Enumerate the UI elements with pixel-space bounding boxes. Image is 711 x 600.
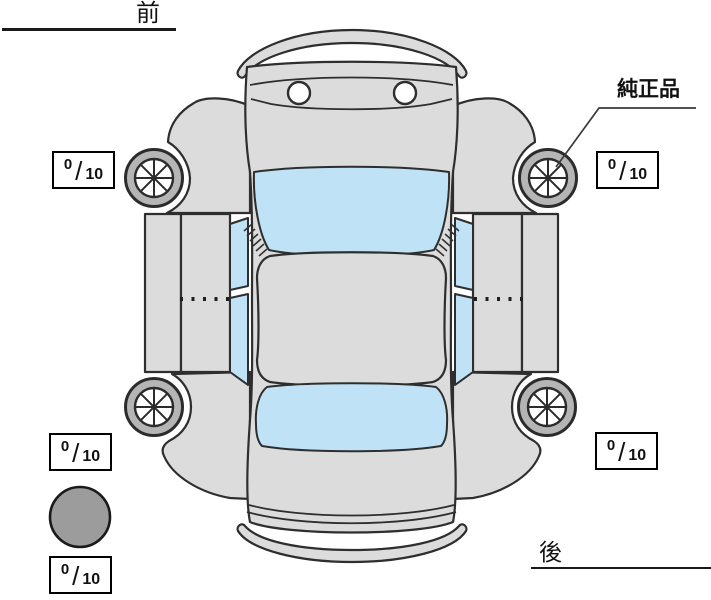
door-left xyxy=(181,214,230,372)
auction-sheet-car-diagram: 前 後 純正品 0 / 10 0 / 10 0 / 10 0 / 10 0 / … xyxy=(0,0,711,600)
tread-slash: / xyxy=(618,437,625,468)
roof-panel xyxy=(257,252,446,386)
tread-max: 10 xyxy=(82,448,100,466)
tread-slash: / xyxy=(72,561,79,592)
tread-value: 0 xyxy=(608,156,616,173)
rear-underline xyxy=(531,567,711,569)
spare-tire-icon xyxy=(50,487,110,547)
tread-max: 10 xyxy=(629,166,647,184)
windshield-glass xyxy=(254,167,449,256)
headlight-right xyxy=(394,82,416,104)
tread-score-box-front-right: 0 / 10 xyxy=(596,151,659,189)
tread-slash: / xyxy=(75,156,82,187)
wheel-front-right xyxy=(520,150,577,207)
wheel-hub xyxy=(151,404,156,409)
rear-label: 後 xyxy=(539,541,562,564)
tread-score-box-rear-right: 0 / 10 xyxy=(595,432,658,470)
rear-window-glass xyxy=(256,383,447,451)
tread-value: 0 xyxy=(64,156,72,173)
side-window-rear-left xyxy=(230,294,248,385)
headlight-left xyxy=(288,82,310,104)
wheel-hub xyxy=(545,175,550,180)
genuine-part-label: 純正品 xyxy=(617,79,680,100)
tread-score-box-spare: 0 / 10 xyxy=(49,556,112,594)
rocker-panel-left xyxy=(145,214,181,372)
wheel-hub xyxy=(544,404,549,409)
fender-front-right xyxy=(453,98,536,213)
tread-max: 10 xyxy=(82,571,100,589)
front-underline xyxy=(2,28,176,31)
front-label: 前 xyxy=(136,2,160,26)
tread-max: 10 xyxy=(628,447,646,465)
tread-value: 0 xyxy=(61,561,69,578)
rocker-panel-right xyxy=(522,214,558,372)
wheel-hub xyxy=(151,175,156,180)
wheel-rear-left xyxy=(126,379,183,436)
tread-max: 10 xyxy=(85,166,103,184)
side-window-rear-right xyxy=(455,294,473,385)
tread-score-box-front-left: 0 / 10 xyxy=(52,151,115,189)
wheel-front-left xyxy=(126,150,183,207)
fender-front-left xyxy=(167,98,250,213)
door-right xyxy=(473,214,522,372)
car-diagram-svg xyxy=(0,0,711,600)
tread-slash: / xyxy=(72,438,79,469)
tread-value: 0 xyxy=(61,438,69,455)
wheel-rear-right xyxy=(519,379,576,436)
tread-value: 0 xyxy=(607,437,615,454)
tread-slash: / xyxy=(619,156,626,187)
tread-score-box-rear-left: 0 / 10 xyxy=(49,433,112,471)
